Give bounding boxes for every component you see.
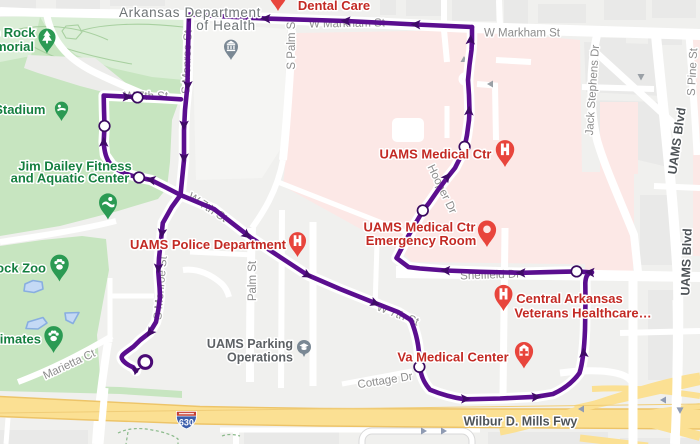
svg-text:Veterans Healthcare…: Veterans Healthcare… xyxy=(514,306,651,321)
svg-text:imates: imates xyxy=(0,332,41,347)
svg-text:Central Arkansas: Central Arkansas xyxy=(516,291,622,306)
svg-text:Operations: Operations xyxy=(227,351,293,365)
svg-text:630: 630 xyxy=(179,417,194,427)
svg-text:Dental Care: Dental Care xyxy=(298,0,370,13)
svg-text:morial: morial xyxy=(0,39,34,54)
svg-text:Palm St: Palm St xyxy=(247,260,259,301)
svg-text:Emergency Room: Emergency Room xyxy=(366,233,477,248)
svg-text:S Palm St: S Palm St xyxy=(286,18,298,70)
svg-text:UAMS Parking: UAMS Parking xyxy=(207,337,293,351)
svg-text:UAMS Medical Ctr: UAMS Medical Ctr xyxy=(380,147,492,162)
svg-text:Va Medical Center: Va Medical Center xyxy=(397,350,508,365)
svg-text:W Markham St: W Markham St xyxy=(484,28,561,40)
svg-text:S Pine St: S Pine St xyxy=(686,47,700,96)
svg-text:and Aquatic Center: and Aquatic Center xyxy=(11,171,130,186)
svg-text:ock Zoo: ock Zoo xyxy=(0,261,46,276)
svg-text:of Health: of Health xyxy=(196,18,255,33)
svg-text:UAMS Police Department: UAMS Police Department xyxy=(130,237,287,252)
svg-text:UAMS Blvd: UAMS Blvd xyxy=(678,228,694,296)
svg-text:e Rock: e Rock xyxy=(0,25,36,40)
svg-text:Wilbur D. Mills Fwy: Wilbur D. Mills Fwy xyxy=(464,415,578,429)
svg-text:Stadium: Stadium xyxy=(0,102,46,117)
